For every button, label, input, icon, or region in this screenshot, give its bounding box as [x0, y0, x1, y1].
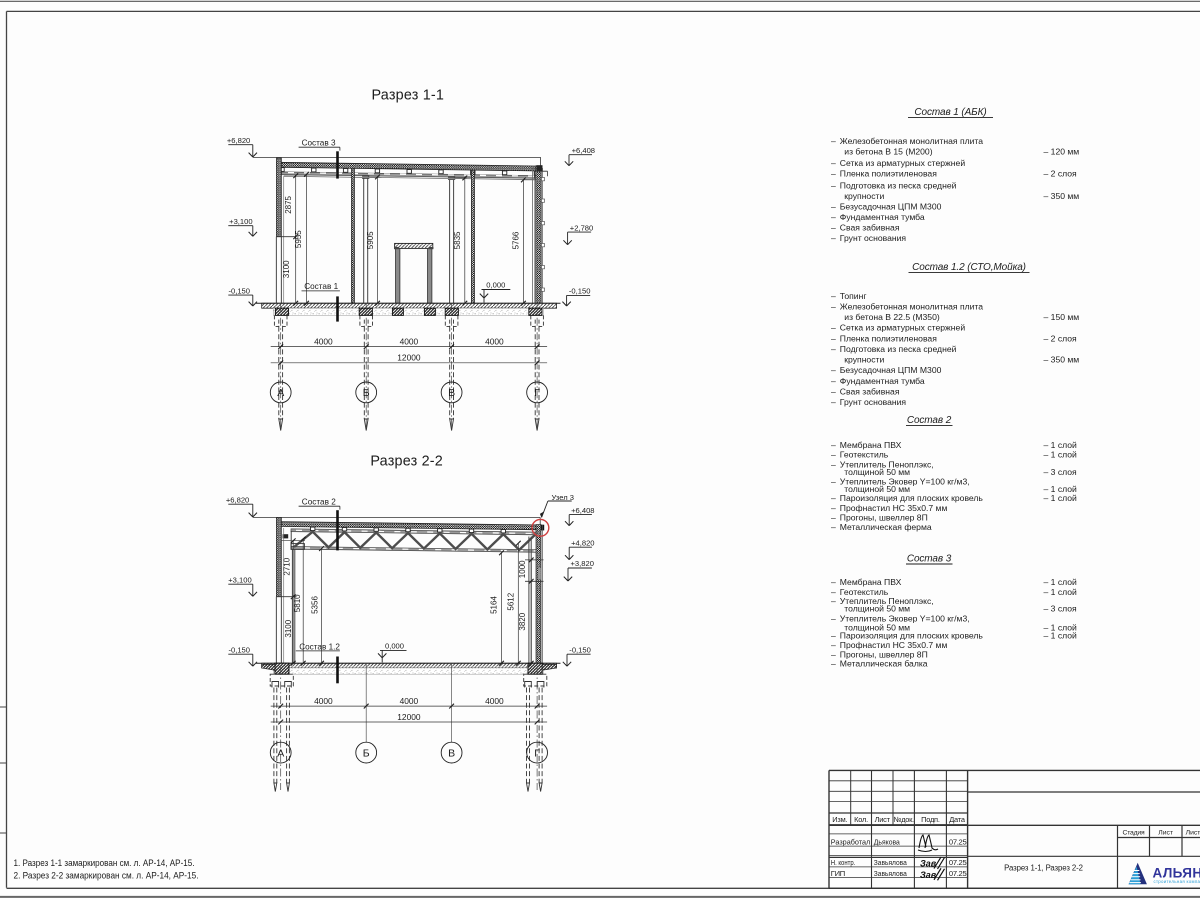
svg-text:– 1 слой: – 1 слой: [1044, 440, 1078, 450]
svg-text:–: –: [831, 212, 836, 222]
svg-text:Лист: Лист: [875, 815, 891, 824]
svg-text:Грунт основания: Грунт основания: [840, 233, 907, 243]
svg-text:Состав 1.2 (СТО,Мойка): Состав 1.2 (СТО,Мойка): [912, 262, 1026, 273]
svg-text:Изм.: Изм.: [832, 815, 847, 824]
svg-text:2875: 2875: [284, 195, 293, 213]
svg-text:Пленка полиэтиленовая: Пленка полиэтиленовая: [840, 333, 937, 343]
svg-text:–: –: [831, 136, 836, 146]
svg-text:+3,100: +3,100: [229, 217, 252, 226]
svg-text:–: –: [831, 169, 836, 179]
svg-text:+6,820: +6,820: [227, 136, 250, 145]
svg-text:–: –: [831, 222, 836, 232]
svg-text:– 1 слой: – 1 слой: [1044, 577, 1078, 587]
svg-text:+6,408: +6,408: [571, 506, 594, 515]
svg-text:Дата: Дата: [949, 815, 966, 824]
svg-text:–: –: [831, 323, 836, 333]
svg-text:Состав 3: Состав 3: [302, 139, 336, 148]
svg-text:07.25: 07.25: [949, 858, 967, 867]
svg-text:– 2 слоя: – 2 слоя: [1044, 333, 1078, 343]
svg-text:07.25: 07.25: [949, 869, 967, 878]
svg-text:Железобетонная монолитная пли: Железобетонная монолитная плита: [840, 136, 983, 146]
svg-text:-0,150: -0,150: [569, 645, 591, 654]
svg-text:– 350 мм: – 350 мм: [1044, 354, 1080, 364]
svg-text:Разрез 1-1, Разрез 2-2: Разрез 1-1, Разрез 2-2: [1004, 864, 1083, 873]
svg-text:3820: 3820: [518, 612, 527, 630]
svg-text:–: –: [831, 440, 836, 450]
svg-text:Завьялова: Завьялова: [874, 869, 908, 878]
svg-text:– 120 мм: – 120 мм: [1044, 147, 1080, 157]
svg-text:Металлическая балка: Металлическая балка: [840, 658, 928, 668]
svg-text:Подготовка из песка средней: Подготовка из песка средней: [840, 180, 957, 190]
svg-text:–: –: [831, 180, 836, 190]
svg-text:–: –: [831, 376, 836, 386]
svg-text:– 150 мм: – 150 мм: [1044, 312, 1080, 322]
svg-text:Состав 3: Состав 3: [907, 554, 952, 565]
svg-text:Состав 1 (АБК): Состав 1 (АБК): [914, 107, 986, 118]
svg-text:Пленка полиэтиленовая: Пленка полиэтиленовая: [840, 169, 937, 179]
svg-text:–: –: [831, 522, 836, 532]
svg-text:+4,820: +4,820: [571, 538, 594, 547]
svg-text:3100: 3100: [282, 260, 291, 278]
svg-text:+6,820: +6,820: [226, 495, 249, 504]
svg-text:крупности: крупности: [844, 191, 884, 201]
svg-text:Разрез 1-1: Разрез 1-1: [371, 88, 444, 104]
svg-text:5612: 5612: [506, 592, 515, 610]
svg-text:Свая забивная: Свая забивная: [840, 222, 900, 232]
svg-text:+6,408: +6,408: [572, 146, 595, 155]
svg-text:5356: 5356: [311, 596, 320, 614]
svg-text:-0,150: -0,150: [569, 287, 591, 296]
svg-text:А: А: [277, 387, 284, 399]
svg-text:толщиной 50 мм: толщиной 50 мм: [844, 467, 910, 477]
svg-text:Безусадочная ЦПМ М300: Безусадочная ЦПМ М300: [840, 365, 942, 375]
svg-text:2710: 2710: [283, 557, 292, 575]
svg-text:–: –: [831, 577, 836, 587]
svg-text:Лист: Лист: [1186, 830, 1200, 837]
svg-text:Состав 1: Состав 1: [304, 282, 338, 291]
svg-text:+2,780: +2,780: [570, 223, 593, 232]
svg-text:А: А: [277, 747, 284, 759]
svg-text:Дьякова: Дьякова: [874, 838, 901, 847]
svg-text:Подп.: Подп.: [921, 815, 940, 824]
svg-text:–: –: [831, 503, 836, 513]
svg-text:Н. контр.: Н. контр.: [831, 858, 856, 867]
svg-text:Фундаментная тумба: Фундаментная тумба: [840, 376, 925, 386]
svg-text:–: –: [831, 344, 836, 354]
svg-text:0,000: 0,000: [486, 281, 505, 290]
svg-text:–: –: [831, 302, 836, 312]
svg-text:–: –: [831, 614, 836, 624]
svg-text:Пароизоляция для плоских крове: Пароизоляция для плоских кровель: [840, 493, 984, 503]
svg-text:– 1 слой: – 1 слой: [1044, 630, 1078, 640]
svg-text:–: –: [831, 387, 836, 397]
svg-text:Состав 2: Состав 2: [302, 498, 336, 507]
svg-text:–: –: [831, 333, 836, 343]
svg-text:2. Разрез 2-2 замаркирован см.: 2. Разрез 2-2 замаркирован см. л. АР-14,…: [14, 870, 199, 880]
svg-text:1. Разрез 1-1 замаркирован см.: 1. Разрез 1-1 замаркирован см. л. АР-14,…: [14, 858, 195, 868]
svg-text:Б: Б: [363, 747, 370, 759]
svg-text:+3,100: +3,100: [228, 575, 251, 584]
svg-text:Г: Г: [534, 387, 540, 399]
svg-text:– 1 слой: – 1 слой: [1044, 493, 1078, 503]
svg-text:4000: 4000: [400, 336, 419, 346]
svg-text:Металлическая ферма: Металлическая ферма: [840, 522, 932, 532]
svg-text:–: –: [831, 201, 836, 211]
svg-text:Геотекстиль: Геотекстиль: [840, 450, 889, 460]
svg-text:Состав 1.2: Состав 1.2: [299, 643, 340, 652]
svg-text:Завьялова: Завьялова: [874, 858, 908, 867]
svg-text:12000: 12000: [397, 712, 421, 722]
svg-text:4000: 4000: [485, 336, 504, 346]
svg-text:строительная компания: строительная компания: [1154, 879, 1200, 884]
svg-text:–: –: [831, 596, 836, 606]
svg-text:5955: 5955: [294, 230, 303, 248]
svg-text:5835: 5835: [453, 231, 462, 249]
svg-text:Топинг: Топинг: [840, 291, 867, 301]
svg-text:Безусадочная ЦПМ М300: Безусадочная ЦПМ М300: [840, 201, 942, 211]
svg-text:Мембрана ПВХ: Мембрана ПВХ: [840, 440, 902, 450]
svg-text:Фундаментная тумба: Фундаментная тумба: [840, 212, 925, 222]
svg-text:Разрез 2-2: Разрез 2-2: [370, 453, 443, 469]
svg-text:Б: Б: [363, 387, 370, 399]
svg-text:+3,820: +3,820: [571, 559, 594, 568]
svg-text:Мембрана ПВХ: Мембрана ПВХ: [840, 577, 902, 587]
svg-text:–: –: [831, 233, 836, 243]
svg-text:–: –: [831, 460, 836, 470]
svg-text:4000: 4000: [314, 336, 333, 346]
svg-text:– 3 слоя: – 3 слоя: [1044, 467, 1078, 477]
svg-text:–: –: [831, 397, 836, 407]
svg-text:Пароизоляция для плоских крове: Пароизоляция для плоских кровель: [840, 630, 984, 640]
svg-text:№док.: №док.: [894, 815, 914, 824]
svg-text:5766: 5766: [512, 231, 521, 249]
svg-text:Сетка из арматурных стержней: Сетка из арматурных стержней: [840, 158, 966, 168]
svg-text:из бетона В 22.5 (М350): из бетона В 22.5 (М350): [844, 312, 940, 322]
svg-text:5164: 5164: [490, 596, 499, 614]
svg-text:–: –: [831, 630, 836, 640]
svg-text:толщиной 50 мм: толщиной 50 мм: [844, 604, 910, 614]
svg-text:– 3 слоя: – 3 слоя: [1044, 604, 1078, 614]
svg-text:–: –: [831, 291, 836, 301]
svg-text:4000: 4000: [400, 696, 419, 706]
svg-text:-0,150: -0,150: [228, 286, 250, 295]
svg-text:Железобетонная монолитная пли: Железобетонная монолитная плита: [840, 302, 983, 312]
svg-text:4000: 4000: [314, 696, 333, 706]
svg-text:1000: 1000: [518, 560, 527, 578]
svg-text:Сетка из арматурных стержней: Сетка из арматурных стержней: [840, 323, 966, 333]
svg-text:–: –: [831, 158, 836, 168]
svg-text:–: –: [831, 450, 836, 460]
svg-text:–: –: [831, 493, 836, 503]
svg-text:Подготовка из песка средней: Подготовка из песка средней: [840, 344, 957, 354]
svg-text:Стадия: Стадия: [1123, 830, 1145, 837]
svg-text:-0,150: -0,150: [228, 645, 250, 654]
svg-text:Свая забивная: Свая забивная: [840, 387, 900, 397]
svg-text:Г: Г: [534, 747, 540, 759]
svg-text:0,000: 0,000: [385, 642, 404, 651]
svg-text:4000: 4000: [485, 696, 504, 706]
svg-text:– 350 мм: – 350 мм: [1044, 191, 1080, 201]
svg-text:– 1 слой: – 1 слой: [1044, 450, 1078, 460]
svg-text:Кол.: Кол.: [854, 815, 868, 824]
svg-text:Профнастил НС 35х0.7 мм: Профнастил НС 35х0.7 мм: [840, 503, 948, 513]
svg-text:5810: 5810: [293, 594, 302, 612]
svg-text:ГИП: ГИП: [831, 869, 845, 878]
svg-text:– 1 слой: – 1 слой: [1044, 587, 1078, 597]
svg-text:12000: 12000: [397, 353, 421, 363]
svg-text:–: –: [831, 658, 836, 668]
svg-text:07.25: 07.25: [949, 837, 967, 846]
svg-text:–: –: [831, 365, 836, 375]
svg-text:–: –: [831, 477, 836, 487]
svg-text:Грунт основания: Грунт основания: [840, 397, 907, 407]
svg-text:Разработал: Разработал: [831, 838, 871, 847]
svg-text:5905: 5905: [366, 231, 375, 249]
svg-text:Состав 2: Состав 2: [907, 415, 952, 426]
svg-text:Лист: Лист: [1158, 830, 1173, 837]
svg-text:3100: 3100: [284, 619, 293, 637]
svg-text:В: В: [448, 387, 455, 399]
svg-text:В: В: [448, 747, 455, 759]
svg-text:из бетона В 15 (М200): из бетона В 15 (М200): [844, 147, 932, 157]
svg-text:– 2 слоя: – 2 слоя: [1044, 169, 1078, 179]
svg-text:крупности: крупности: [844, 354, 884, 364]
